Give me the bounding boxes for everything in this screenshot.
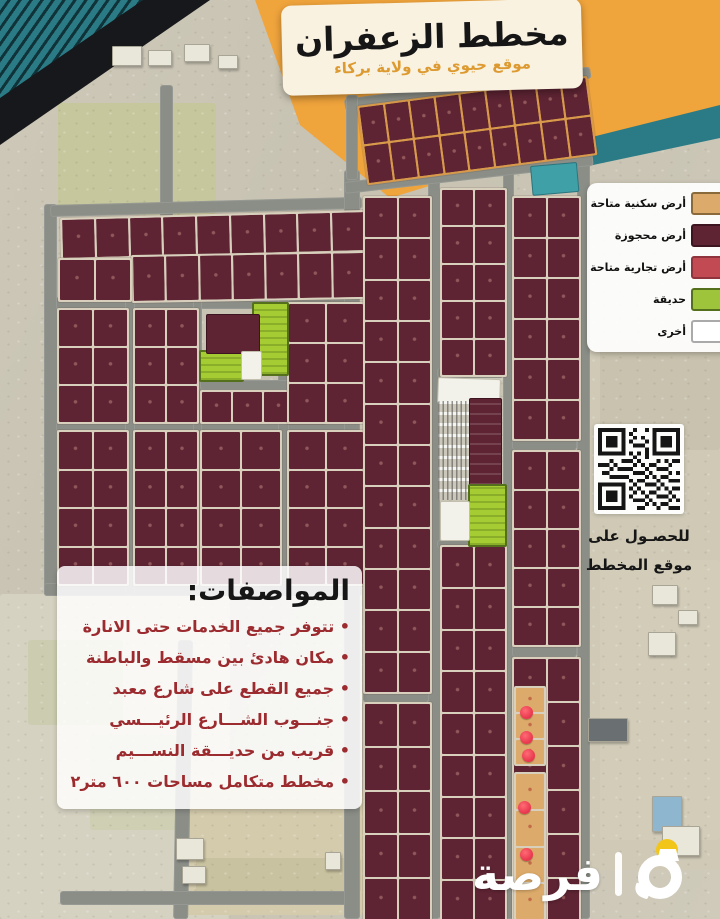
plot xyxy=(200,255,232,300)
sold-stamp xyxy=(522,749,535,762)
plot xyxy=(135,310,165,346)
plot xyxy=(265,214,298,253)
parking-area xyxy=(438,401,472,500)
plot xyxy=(59,386,92,422)
plot xyxy=(399,405,431,444)
specs-list: تتوفر جميع الخدمات حتى الانارةمكان هادئ … xyxy=(69,611,350,797)
building xyxy=(652,585,678,605)
plot xyxy=(94,471,127,508)
plot xyxy=(365,322,397,361)
plot xyxy=(567,117,595,157)
plot xyxy=(475,227,506,262)
plot xyxy=(475,265,506,300)
plot xyxy=(548,791,580,833)
plot xyxy=(399,611,431,650)
plot xyxy=(327,304,363,342)
plot xyxy=(442,589,473,629)
plot xyxy=(491,127,519,167)
plot xyxy=(548,491,580,528)
spec-item: جنـــوب الشـــارع الرئيـــسي xyxy=(69,704,350,735)
building xyxy=(112,46,142,66)
street xyxy=(44,204,57,596)
plot xyxy=(442,798,473,838)
plot xyxy=(59,432,92,469)
plot xyxy=(327,432,363,469)
brand-logo: فرصة xyxy=(438,836,710,912)
spec-item: تتوفر جميع الخدمات حتى الانارة xyxy=(69,611,350,642)
plot xyxy=(475,756,506,796)
plot xyxy=(548,703,580,745)
legend-item: أخرى xyxy=(593,320,720,343)
brand-name: فرصة xyxy=(472,851,603,897)
plot xyxy=(514,279,546,318)
other-plot xyxy=(440,501,470,541)
plot xyxy=(548,279,580,318)
plot xyxy=(442,672,473,712)
qr-caption-line1: للحصـول على xyxy=(580,522,698,551)
plot xyxy=(94,386,127,422)
plot xyxy=(399,529,431,568)
plot xyxy=(475,714,506,754)
plot xyxy=(548,452,580,489)
plot xyxy=(365,835,397,877)
plot xyxy=(94,432,127,469)
plot xyxy=(202,392,231,422)
plot-block xyxy=(200,430,282,586)
plot xyxy=(399,239,431,278)
plot-block xyxy=(133,308,199,424)
building xyxy=(184,44,210,62)
plot xyxy=(167,509,197,546)
plot xyxy=(548,569,580,606)
plot xyxy=(516,123,544,163)
plot-block xyxy=(57,308,129,424)
building xyxy=(678,610,698,625)
plot xyxy=(333,253,365,298)
spec-item: قريب من حديـــقة النســـيم xyxy=(69,735,350,766)
plot xyxy=(96,260,130,300)
plot xyxy=(442,265,473,300)
plot xyxy=(475,302,506,337)
plot xyxy=(167,310,197,346)
sold-stamp xyxy=(518,801,531,814)
plot xyxy=(289,509,325,546)
plot xyxy=(475,589,506,629)
plot xyxy=(399,704,431,746)
plot xyxy=(365,198,397,237)
building xyxy=(325,852,341,870)
plot xyxy=(442,547,473,587)
qr-section: للحصـول على موقع المخطط xyxy=(580,424,698,579)
plot-block xyxy=(58,258,132,302)
plot xyxy=(548,401,580,440)
park-plot xyxy=(468,484,507,547)
plot xyxy=(514,530,546,567)
plot xyxy=(475,798,506,838)
plot xyxy=(365,487,397,526)
legend-item: حديقة xyxy=(593,288,720,311)
plot xyxy=(399,322,431,361)
plot xyxy=(399,835,431,877)
plot xyxy=(242,432,280,469)
legend-item: أرض محجوزة xyxy=(593,224,720,247)
plot xyxy=(298,213,331,252)
plot xyxy=(135,432,165,469)
plot xyxy=(514,452,546,489)
plot xyxy=(59,509,92,546)
sold-stamp xyxy=(520,706,533,719)
plot xyxy=(514,608,546,645)
building-strip xyxy=(469,398,502,486)
plot xyxy=(163,216,196,255)
plot xyxy=(466,130,494,170)
plot xyxy=(399,879,431,919)
plot xyxy=(289,471,325,508)
plot xyxy=(135,509,165,546)
plot xyxy=(514,198,546,237)
plot-block xyxy=(512,450,581,647)
map-legend: أرض سكنية متاحةأرض محجوزةأرض تجارية متاح… xyxy=(587,183,720,352)
plot xyxy=(399,748,431,790)
plot xyxy=(59,348,92,384)
plot xyxy=(299,254,331,299)
plot xyxy=(548,530,580,567)
specs-panel: المواصفات: تتوفر جميع الخدمات حتى الانار… xyxy=(57,566,362,809)
building xyxy=(148,50,172,66)
plot xyxy=(514,320,546,359)
building xyxy=(648,632,676,656)
plot xyxy=(475,631,506,671)
plot xyxy=(332,212,365,251)
legend-item: أرض تجارية متاحة xyxy=(593,256,720,279)
legend-label: أرض تجارية متاحة xyxy=(590,262,686,274)
plot xyxy=(62,219,95,258)
plot xyxy=(399,363,431,402)
plot xyxy=(166,256,198,301)
plot xyxy=(60,260,94,300)
spec-item: جميع القطع على شارع معبد xyxy=(69,673,350,704)
plot xyxy=(289,344,325,382)
spec-item: مكان هادئ بين مسقط والباطنة xyxy=(69,642,350,673)
building xyxy=(176,838,204,860)
plot xyxy=(242,471,280,508)
logo-divider xyxy=(615,852,622,896)
legend-swatch xyxy=(691,256,720,279)
legend-label: أرض محجوزة xyxy=(615,230,686,242)
plot xyxy=(548,198,580,237)
plot xyxy=(399,792,431,834)
building xyxy=(218,55,238,69)
plot xyxy=(514,239,546,278)
plot xyxy=(461,91,489,131)
plot xyxy=(442,756,473,796)
plot xyxy=(475,672,506,712)
plot xyxy=(135,386,165,422)
plot xyxy=(59,471,92,508)
plot xyxy=(390,140,418,180)
plot xyxy=(442,340,473,375)
plot-block xyxy=(440,188,507,377)
plot xyxy=(514,401,546,440)
plot xyxy=(202,471,240,508)
plot xyxy=(167,386,197,422)
plot xyxy=(442,302,473,337)
legend-swatch xyxy=(691,320,720,343)
plot xyxy=(289,304,325,342)
plot xyxy=(364,143,392,183)
plot xyxy=(365,446,397,485)
plot xyxy=(399,198,431,237)
spec-item: مخطط متكامل مساحات ٦٠٠ متر٢ xyxy=(69,766,350,797)
plot xyxy=(442,227,473,262)
plot xyxy=(365,239,397,278)
legend-label: أخرى xyxy=(657,326,686,338)
plot xyxy=(514,491,546,528)
plot xyxy=(327,344,363,382)
forsah-basket-icon xyxy=(634,839,710,909)
plot xyxy=(96,218,129,257)
plot xyxy=(289,432,325,469)
legend-item: أرض سكنية متاحة xyxy=(593,192,720,215)
plot xyxy=(548,360,580,399)
plot xyxy=(327,509,363,546)
plot xyxy=(365,748,397,790)
plot xyxy=(327,384,363,422)
street xyxy=(60,891,360,905)
plot xyxy=(399,446,431,485)
legend-swatch xyxy=(691,224,720,247)
plot xyxy=(365,653,397,692)
plot xyxy=(365,405,397,444)
legend-swatch xyxy=(691,288,720,311)
plot xyxy=(442,714,473,754)
plot xyxy=(440,133,468,173)
plot xyxy=(202,432,240,469)
plot-block xyxy=(131,251,367,303)
park-plot xyxy=(199,350,244,382)
plot xyxy=(167,432,197,469)
plot xyxy=(242,509,280,546)
plan-subtitle: موقع حيوي في ولاية بركاء xyxy=(334,55,531,78)
plot xyxy=(365,879,397,919)
legend-label: أرض سكنية متاحة xyxy=(591,198,686,210)
poster: مخطط الزعفران موقع حيوي في ولاية بركاء أ… xyxy=(0,0,720,919)
plot xyxy=(548,320,580,359)
legend-label: حديقة xyxy=(653,294,686,306)
plot xyxy=(486,88,514,128)
plot xyxy=(548,239,580,278)
plot xyxy=(365,611,397,650)
plot xyxy=(442,190,473,225)
plot xyxy=(410,98,438,138)
plot xyxy=(167,348,197,384)
plot xyxy=(415,137,443,177)
plot xyxy=(475,190,506,225)
plot-block xyxy=(363,196,432,694)
plot-block xyxy=(512,196,581,441)
qr-code xyxy=(594,424,684,514)
plot xyxy=(548,608,580,645)
plot xyxy=(94,310,127,346)
plot xyxy=(167,471,197,508)
plot xyxy=(435,95,463,135)
plot xyxy=(475,547,506,587)
plot xyxy=(94,509,127,546)
qr-caption-line2: موقع المخطط xyxy=(580,551,698,580)
plot xyxy=(542,120,570,160)
plot xyxy=(365,570,397,609)
reserved-plot xyxy=(206,314,260,354)
plot xyxy=(399,281,431,320)
plot xyxy=(359,105,387,145)
plot xyxy=(197,216,230,255)
street xyxy=(346,95,358,180)
plot xyxy=(289,384,325,422)
plot xyxy=(266,254,298,299)
plot-block xyxy=(57,430,129,586)
building xyxy=(182,866,206,884)
plot xyxy=(399,570,431,609)
plot xyxy=(399,653,431,692)
plot-block xyxy=(133,430,199,586)
plot xyxy=(385,101,413,141)
plot-block xyxy=(287,430,365,586)
plot xyxy=(399,487,431,526)
plot xyxy=(548,659,580,701)
plot xyxy=(94,348,127,384)
plot xyxy=(442,631,473,671)
plot xyxy=(365,363,397,402)
title-banner: مخطط الزعفران موقع حيوي في ولاية بركاء xyxy=(281,0,583,96)
plot xyxy=(327,471,363,508)
plot xyxy=(514,569,546,606)
plot xyxy=(365,792,397,834)
plot xyxy=(233,392,262,422)
plot xyxy=(365,529,397,568)
plot xyxy=(130,217,163,256)
plot xyxy=(514,360,546,399)
teal-plot xyxy=(530,162,579,196)
plot-block xyxy=(363,702,432,919)
specs-title: المواصفات: xyxy=(69,574,350,607)
plan-title: مخطط الزعفران xyxy=(294,15,569,58)
plot xyxy=(135,471,165,508)
sold-stamp xyxy=(520,731,533,744)
plot xyxy=(233,255,265,300)
plot xyxy=(365,281,397,320)
plot-block xyxy=(287,302,365,424)
plot xyxy=(133,256,165,301)
plot xyxy=(202,509,240,546)
plot xyxy=(365,704,397,746)
plot xyxy=(135,348,165,384)
plot xyxy=(231,215,264,254)
legend-swatch xyxy=(691,192,720,215)
terrain-field xyxy=(58,103,216,215)
plot xyxy=(475,340,506,375)
plot xyxy=(511,85,539,125)
building xyxy=(588,718,628,742)
other-plot xyxy=(241,351,262,380)
plot xyxy=(548,747,580,789)
plot xyxy=(59,310,92,346)
